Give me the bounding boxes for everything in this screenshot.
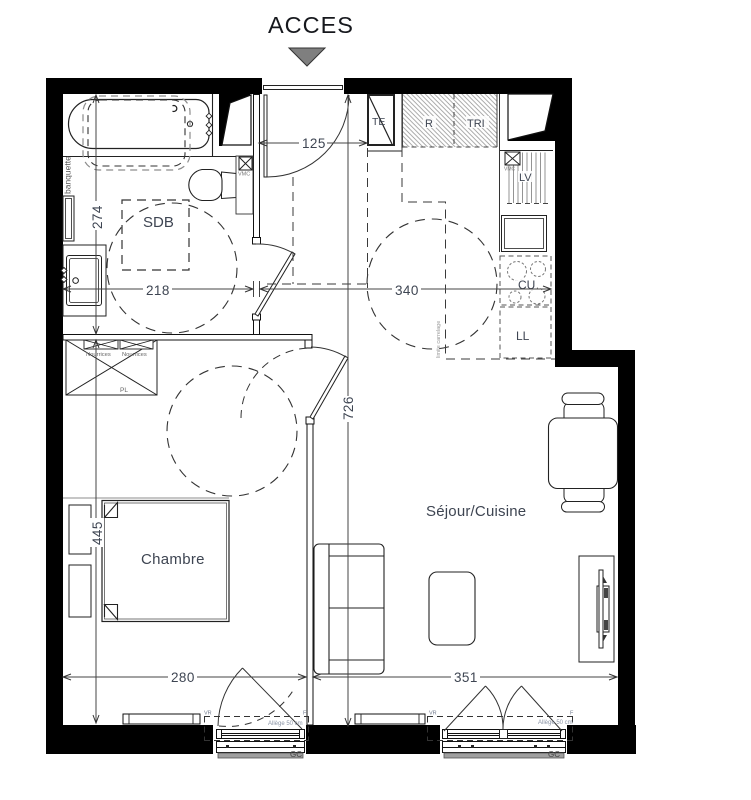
svg-text:VMC: VMC [504, 167, 516, 173]
svg-text:GC: GC [548, 750, 560, 759]
svg-text:351: 351 [454, 670, 478, 685]
svg-text:Nourrices: Nourrices [86, 352, 111, 358]
svg-text:274: 274 [90, 205, 105, 229]
svg-text:Chambre: Chambre [141, 551, 205, 568]
svg-text:VR: VR [429, 711, 437, 717]
svg-text:limite carrelage: limite carrelage [436, 321, 442, 358]
svg-text:Séjour/Cuisine: Séjour/Cuisine [426, 503, 526, 520]
svg-text:340: 340 [395, 283, 419, 298]
svg-text:ACCES: ACCES [268, 12, 354, 38]
svg-text:218: 218 [146, 283, 170, 298]
svg-text:Allège 50 cm: Allège 50 cm [538, 720, 573, 726]
svg-text:Allège 50 cm: Allège 50 cm [268, 721, 303, 727]
svg-text:CU: CU [518, 278, 535, 292]
svg-text:GC: GC [290, 750, 302, 759]
svg-text:LL: LL [516, 329, 530, 343]
svg-text:VR: VR [204, 711, 212, 717]
svg-text:280: 280 [171, 670, 195, 685]
svg-text:VMC: VMC [238, 172, 250, 178]
svg-text:TRI: TRI [467, 118, 485, 130]
svg-text:PL: PL [120, 387, 128, 394]
svg-text:SDB: SDB [143, 214, 174, 231]
svg-text:TE: TE [372, 116, 385, 128]
svg-text:445: 445 [90, 521, 105, 545]
svg-text:LV: LV [519, 172, 532, 184]
svg-text:726: 726 [341, 396, 356, 420]
svg-text:Nourrices: Nourrices [122, 352, 147, 358]
svg-text:banquette: banquette [63, 156, 73, 194]
svg-text:R: R [425, 118, 433, 130]
svg-text:125: 125 [302, 136, 326, 151]
